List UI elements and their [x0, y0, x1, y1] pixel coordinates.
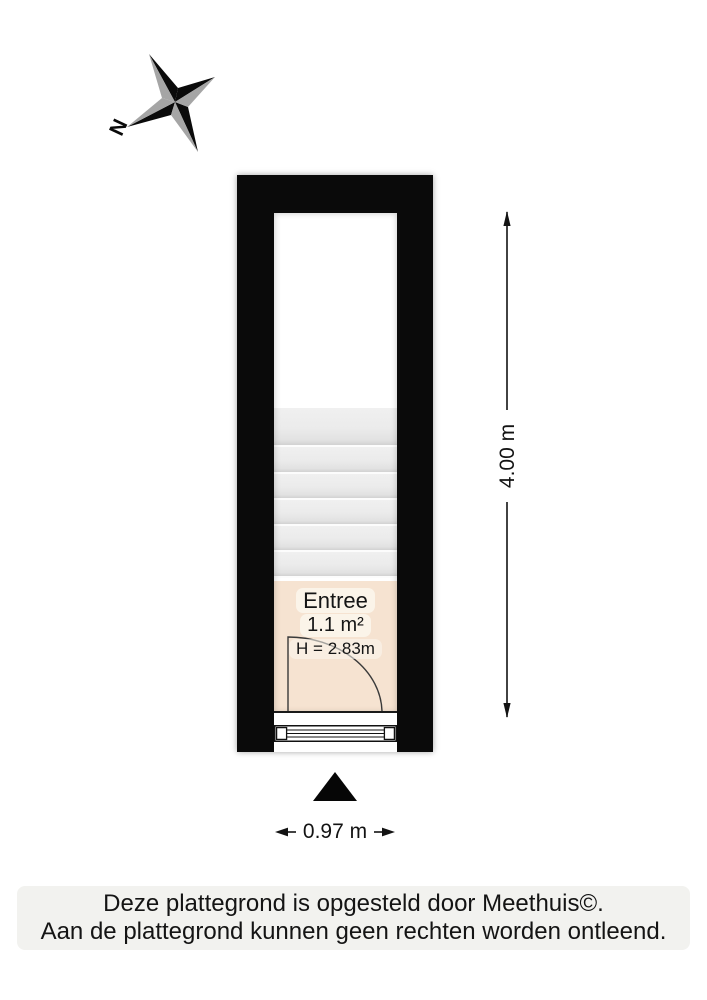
- stair-tread: [274, 552, 397, 578]
- compass-rose-icon: N: [103, 40, 243, 165]
- room-area-label: 1.1 m²: [300, 614, 371, 637]
- stair-tread: [274, 408, 397, 447]
- disclaimer-line-2: Aan de plattegrond kunnen geen rechten w…: [41, 918, 667, 946]
- room-height-label: H = 2.83m: [289, 639, 382, 659]
- room-name-label: Entree: [296, 588, 375, 613]
- entree-room: Entree 1.1 m² H = 2.83m: [274, 581, 397, 713]
- height-dimension-label: 4.00 m: [496, 398, 518, 514]
- entrance-arrow-icon: [313, 772, 357, 801]
- width-dimension: 0.97 m: [255, 816, 415, 848]
- floorplan-page: { "compass": { "north_label": "N" }, "fl…: [0, 0, 707, 1000]
- arrow-right-icon: [374, 826, 396, 838]
- front-door-icon: [274, 713, 397, 752]
- staircase: [274, 408, 397, 578]
- plan-interior: Entree 1.1 m² H = 2.83m: [274, 213, 397, 752]
- arrow-up-icon: [503, 211, 510, 226]
- stair-tread: [274, 447, 397, 473]
- void-area: [274, 213, 397, 408]
- width-dimension-label: 0.97 m: [303, 820, 367, 844]
- arrow-down-icon: [503, 703, 510, 718]
- door-threshold: [274, 713, 397, 752]
- arrow-left-icon: [274, 826, 296, 838]
- stair-tread: [274, 500, 397, 526]
- stair-tread: [274, 526, 397, 552]
- north-label: N: [105, 116, 132, 139]
- stair-tread: [274, 474, 397, 500]
- disclaimer-line-1: Deze plattegrond is opgesteld door Meeth…: [103, 890, 604, 918]
- footer-disclaimer: Deze plattegrond is opgesteld door Meeth…: [17, 886, 690, 950]
- floorplan: Entree 1.1 m² H = 2.83m: [237, 175, 433, 752]
